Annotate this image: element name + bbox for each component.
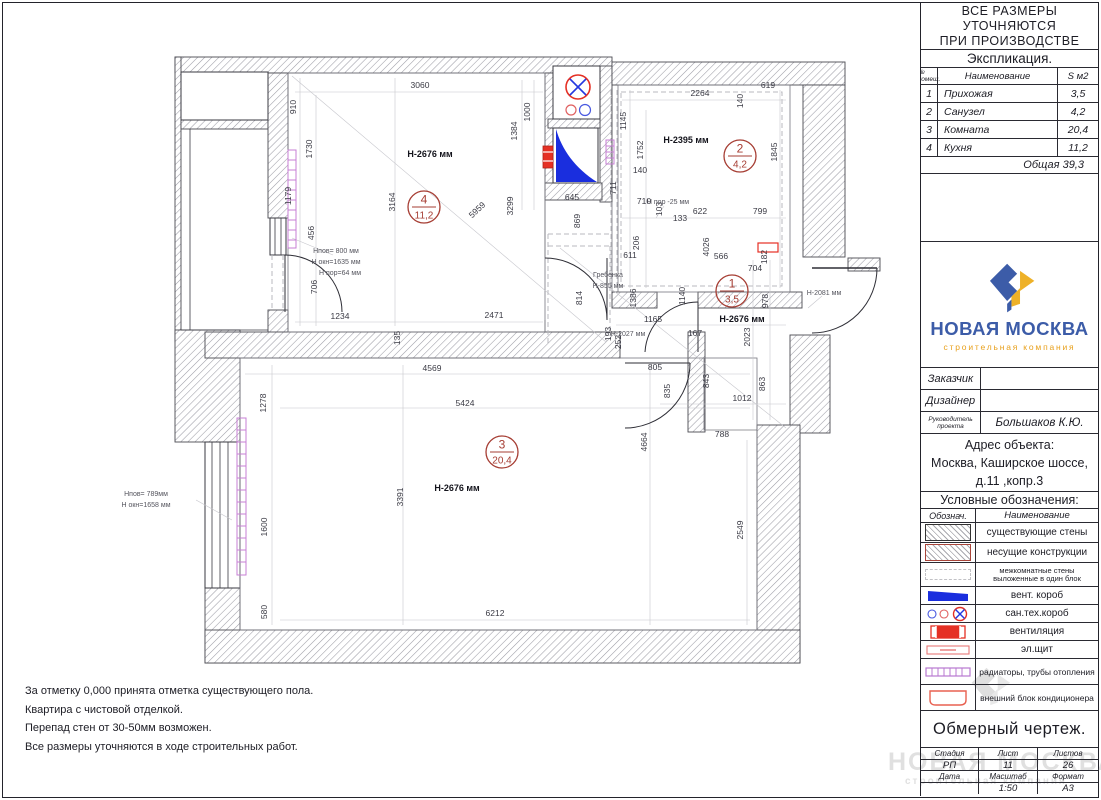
designer-label: Дизайнер	[921, 390, 981, 411]
dimension-label: 2023	[742, 327, 752, 346]
dimension-label: 182	[759, 250, 769, 264]
dimension-label: 135	[392, 331, 402, 345]
dimension-label: 1384	[509, 121, 519, 140]
dimension-label: 3060	[411, 80, 430, 90]
dimension-label: 910	[288, 100, 298, 114]
dimension-label: 167	[688, 328, 702, 338]
note-line: Квартира с чистовой отделкой.	[25, 701, 325, 720]
dimension-label: Н-2676 мм	[719, 314, 765, 324]
address-line1: Москва, Каширское шоссе,	[921, 454, 1098, 472]
sheet-note-line2: ПРИ ПРОИЗВОДСТВЕ РАБОТ.	[921, 34, 1098, 50]
dimension-label: 611	[623, 250, 637, 260]
customer-row: Заказчик	[921, 368, 1098, 390]
dimension-label: 805	[648, 362, 662, 372]
room-area: 3,5	[1058, 85, 1098, 102]
document-title: Обмерный чертеж.	[921, 711, 1098, 748]
note-line: За отметку 0,000 принята отметка существ…	[25, 682, 325, 701]
dimension-label: 140	[735, 94, 745, 108]
dimension-label: 619	[761, 80, 775, 90]
dimension-label: Н-2676 мм	[434, 483, 480, 493]
col-name-header: Наименование	[938, 68, 1058, 84]
dimension-label: 645	[565, 192, 579, 202]
object-address: Адрес объекта: Москва, Каширское шоссе, …	[921, 434, 1098, 492]
legend-title: Условные обозначения:	[921, 492, 1098, 509]
legend-item: вент. короб	[921, 587, 1098, 605]
dimension-label: 711	[608, 181, 618, 195]
door-entry-arc	[812, 268, 877, 333]
svg-text:1: 1	[729, 277, 736, 291]
date-label: Дата	[921, 771, 979, 783]
general-notes: За отметку 0,000 принята отметка существ…	[25, 682, 325, 756]
room-number: 2	[921, 103, 938, 120]
dimension-label: Н-2676 мм	[407, 149, 453, 159]
door-room3-arc	[625, 363, 690, 428]
dimension-label: 863	[757, 377, 767, 391]
legend-item-label: радиаторы, трубы отопления	[976, 659, 1098, 684]
dimension-label: 566	[714, 251, 728, 261]
designer-value	[981, 390, 1098, 411]
legend-item-label: вентиляция	[976, 623, 1098, 640]
explication-title: Экспликация.	[921, 50, 1098, 68]
dimension-label: Н-2027 мм	[611, 331, 646, 338]
dimension-label: 2549	[735, 520, 745, 539]
format-value: А3	[1038, 783, 1098, 794]
address-label: Адрес объекта:	[921, 436, 1098, 454]
dimension-label: 5424	[456, 398, 475, 408]
dimension-label: Н пор -25 мм	[647, 199, 689, 206]
dimension-label: 140	[633, 165, 647, 175]
svg-text:2: 2	[737, 142, 744, 156]
dimension-label: 4569	[423, 363, 442, 373]
dimension-label: 1012	[733, 393, 752, 403]
dimension-label: Н-2081 мм	[807, 290, 842, 297]
room-name: Санузел	[938, 103, 1058, 120]
room-area: 20,4	[1058, 121, 1098, 138]
block-partition-icon	[921, 563, 976, 586]
dimension-label: 1140	[677, 287, 687, 306]
scale-label: Масштаб	[979, 771, 1038, 783]
dimension-label: 3391	[395, 487, 405, 506]
project-lead-row: Руководитель проекта Большаков К.Ю.	[921, 412, 1098, 434]
address-line2: д.11 ,копр.3	[921, 472, 1098, 490]
legend-item-label: сан.тех.короб	[976, 605, 1098, 622]
empty-box	[921, 174, 1098, 242]
format-label: Формат	[1038, 771, 1098, 783]
note-line: Все размеры уточняются в ходе строительн…	[25, 738, 325, 757]
dimension-label: 978	[760, 294, 770, 308]
dimension-label: 456	[306, 226, 316, 240]
company-name: НОВАЯ МОСКВА	[930, 318, 1088, 340]
existing-walls-icon	[921, 523, 976, 542]
sheet-note-line1: ВСЕ РАЗМЕРЫ УТОЧНЯЮТСЯ	[921, 4, 1098, 34]
dimension-label: 1234	[331, 311, 350, 321]
explication-header: № помещ. Наименование S м2	[921, 68, 1098, 85]
dimension-label: 1845	[769, 142, 779, 161]
dimension-label: Hпов= 789мм	[124, 491, 168, 498]
dimension-label: 1386	[628, 288, 638, 307]
stamp-grid: Стадия Лист Листов РП 11 26 Дата Масштаб…	[921, 748, 1098, 794]
radiator-legend-icon	[921, 659, 976, 684]
dimension-label: Н-855 мм	[593, 283, 624, 290]
project-lead-label-line1: Руководитель	[928, 416, 972, 423]
legend-item: несущие конструкции	[921, 543, 1098, 563]
dimension-label: 1165	[644, 314, 663, 324]
dimension-label: 788	[715, 429, 729, 439]
dimension-label: 622	[693, 206, 707, 216]
dimension-label: 133	[673, 213, 687, 223]
dimension-label: 835	[662, 384, 672, 398]
dimension-label: 704	[748, 263, 762, 273]
dimension-label: 2471	[485, 310, 504, 320]
sheet-value: 11	[979, 760, 1038, 771]
dimension-label: 4664	[639, 432, 649, 451]
legend-symbol-header: Обознач.	[921, 509, 976, 522]
dimension-label: 206	[631, 236, 641, 250]
room-area: 11,2	[1058, 139, 1098, 156]
dimension-label: 1600	[259, 517, 269, 536]
svg-text:3,5: 3,5	[725, 295, 739, 306]
room-name: Комната	[938, 121, 1058, 138]
room-number: 1	[921, 85, 938, 102]
room-marker: 24,2	[724, 140, 756, 172]
electric-panel-legend-icon	[921, 641, 976, 658]
legend-item: эл.щит	[921, 641, 1098, 659]
customer-label: Заказчик	[921, 368, 981, 389]
designer-row: Дизайнер	[921, 390, 1098, 412]
legend-name-header: Наименование	[976, 509, 1098, 522]
dimension-label: 814	[574, 291, 584, 305]
col-num-header: № помещ.	[921, 68, 938, 84]
dimension-label: Hпов= 800 мм	[313, 248, 359, 255]
floor-plan: 3060910173011794567061234247113531645959…	[0, 0, 920, 800]
scale-value: 1:50	[979, 783, 1038, 794]
dimension-label: 2264	[691, 88, 710, 98]
sheet-label: Лист	[979, 748, 1038, 760]
explication-total: Общая 39,3	[921, 157, 1098, 174]
legend-item: внешний блок кондиционера	[921, 685, 1098, 711]
room-marker: 320,4	[486, 436, 518, 468]
dimension-label: Н-2395 мм	[663, 135, 709, 145]
dimension-label: 580	[259, 605, 269, 619]
customer-value	[981, 368, 1098, 389]
legend-item: существующие стены	[921, 523, 1098, 543]
legend-item-label: внешний блок кондиционера	[976, 685, 1098, 710]
project-lead-value: Большаков К.Ю.	[981, 412, 1098, 433]
room-name: Прихожая	[938, 85, 1058, 102]
dimension-label: 1179	[283, 187, 293, 206]
explication-row: 3 Комната 20,4	[921, 121, 1098, 139]
room-marker: 411,2	[408, 191, 440, 223]
dimension-label: Н пор=64 мм	[319, 270, 361, 277]
svg-text:4: 4	[421, 193, 428, 207]
vent-duct-legend-icon	[921, 587, 976, 604]
svg-text:4,2: 4,2	[733, 160, 747, 171]
room-marker: 13,5	[716, 275, 748, 307]
dimension-label: 3164	[387, 192, 397, 211]
svg-text:20,4: 20,4	[492, 456, 512, 467]
col-area-header: S м2	[1058, 68, 1098, 84]
dimension-label: 4026	[701, 237, 711, 256]
dimension-label: Гребенка	[593, 271, 623, 279]
dimension-label: 843	[701, 374, 711, 388]
dimension-label: 869	[572, 214, 582, 228]
legend-item: радиаторы, трубы отопления	[921, 659, 1098, 685]
room-number: 3	[921, 121, 938, 138]
room-name: Кухня	[938, 139, 1058, 156]
company-logo-block: НОВАЯ МОСКВА строительная компания	[921, 242, 1098, 368]
legend-item-label: эл.щит	[976, 641, 1098, 658]
legend-item-label: межкомнатные стены выложенные в один бло…	[976, 563, 1098, 586]
company-tagline: строительная компания	[944, 342, 1076, 352]
dimension-label: 1145	[618, 112, 628, 131]
legend-item: вентиляция	[921, 623, 1098, 641]
legend-item-label: существующие стены	[976, 523, 1098, 542]
date-value	[921, 783, 979, 794]
ventilation-icon	[543, 146, 553, 168]
svg-text:3: 3	[499, 438, 506, 452]
ac-unit-legend-icon	[921, 685, 976, 710]
dimension-label: Н окн=1635 мм	[311, 259, 360, 266]
stage-value: РП	[921, 760, 979, 771]
title-block: ВСЕ РАЗМЕРЫ УТОЧНЯЮТСЯ ПРИ ПРОИЗВОДСТВЕ …	[920, 2, 1097, 796]
ventilation-legend-icon	[921, 623, 976, 640]
legend-header: Обознач. Наименование	[921, 509, 1098, 523]
sheets-value: 26	[1038, 760, 1098, 771]
svg-text:11,2: 11,2	[415, 211, 434, 222]
dimension-label: 1730	[304, 139, 314, 158]
explication-row: 2 Санузел 4,2	[921, 103, 1098, 121]
dimension-label: Н окн=1658 мм	[121, 502, 170, 509]
legend-item-label: несущие конструкции	[976, 543, 1098, 562]
sheets-label: Листов	[1038, 748, 1098, 760]
legend-item-label: вент. короб	[976, 587, 1098, 604]
stage-label: Стадия	[921, 748, 979, 760]
company-logo-icon	[974, 248, 1046, 316]
note-line: Перепад стен от 30-50мм возможен.	[25, 719, 325, 738]
project-lead-label-line2: проекта	[937, 423, 964, 430]
dimension-label: 799	[753, 206, 767, 216]
dimension-label: 6212	[486, 608, 505, 618]
explication-row: 1 Прихожая 3,5	[921, 85, 1098, 103]
dimension-label: 706	[309, 280, 319, 294]
project-lead-label: Руководитель проекта	[921, 412, 981, 433]
openings	[181, 66, 600, 588]
explication-row: 4 Кухня 11,2	[921, 139, 1098, 157]
legend-item: межкомнатные стены выложенные в один бло…	[921, 563, 1098, 587]
bearing-structures-icon	[921, 543, 976, 562]
room-area: 4,2	[1058, 103, 1098, 120]
santeh-duct-legend-icon	[921, 605, 976, 622]
sheet-note: ВСЕ РАЗМЕРЫ УТОЧНЯЮТСЯ ПРИ ПРОИЗВОДСТВЕ …	[921, 2, 1098, 50]
dimension-label: 1000	[522, 102, 532, 121]
dimension-label: 5959	[467, 200, 488, 220]
dimension-label: 1752	[635, 140, 645, 159]
dimension-label: 1278	[258, 393, 268, 412]
drawing-sheet: 3060910173011794567061234247113531645959…	[0, 0, 1101, 800]
legend-item: сан.тех.короб	[921, 605, 1098, 623]
room-number: 4	[921, 139, 938, 156]
dimension-label: 3299	[505, 196, 515, 215]
